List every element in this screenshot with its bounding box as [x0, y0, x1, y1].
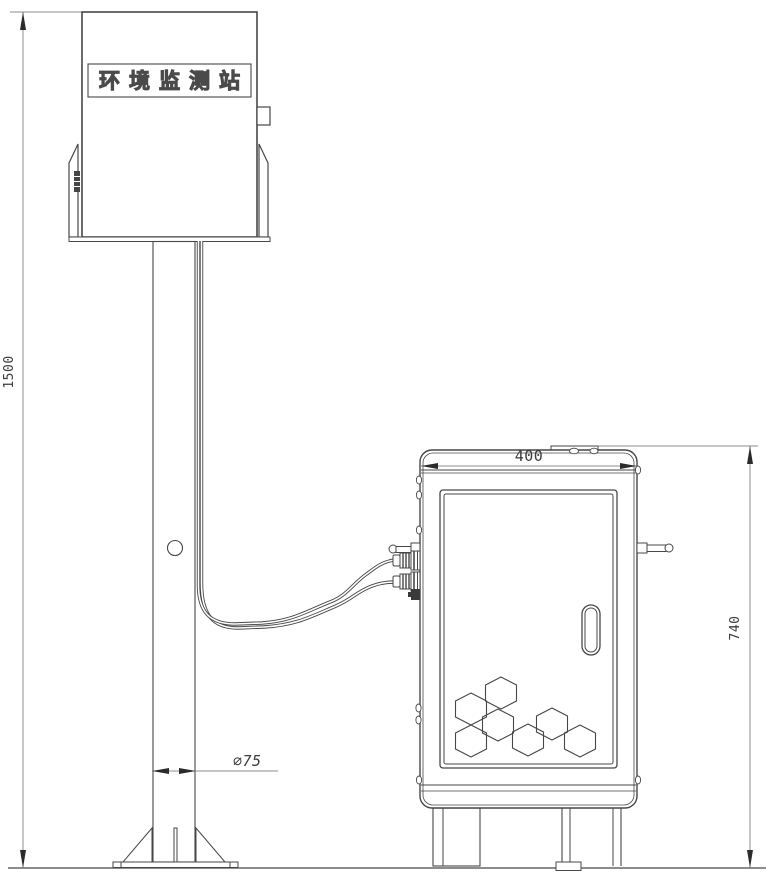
installation-drawing: 1500 环境监测站 — [0, 0, 769, 882]
cabinet-legs — [433, 808, 621, 871]
sensor-cabinet — [389, 448, 673, 870]
dim-pole-height-value: 1500 — [2, 355, 17, 388]
bracket-hinge-icon — [74, 171, 80, 192]
signal-cable — [199, 241, 395, 628]
small-connector-icon — [408, 589, 420, 600]
monitoring-station-box: 环境监测站 — [69, 12, 270, 242]
pole-base — [113, 828, 238, 868]
cable-upper-outline — [199, 241, 395, 624]
arrow-up-icon — [20, 12, 26, 30]
bottom-band — [69, 237, 270, 242]
pole-cable-hole — [168, 541, 183, 556]
base-plate — [113, 862, 238, 868]
arrow-down-icon — [747, 850, 753, 868]
right-leg — [556, 808, 621, 871]
right-gusset — [196, 828, 225, 862]
technical-drawing-page: 1500 环境监测站 — [0, 0, 769, 882]
dimension-pole-height: 1500 — [2, 12, 82, 868]
side-tab — [257, 107, 270, 125]
cable-lower-core — [202, 241, 395, 628]
dim-pole-diameter-value: ∅75 — [233, 752, 262, 770]
arrow-down-icon — [20, 850, 26, 868]
left-gusset — [123, 828, 152, 862]
right-leg-foot — [556, 862, 581, 871]
left-side-fittings — [389, 543, 420, 600]
left-leg — [433, 808, 480, 866]
top-pad-icon — [590, 448, 598, 454]
dimension-cabinet-height: 740 — [728, 446, 753, 868]
dim-cabinet-width-value: 400 — [515, 447, 544, 465]
top-pad-icon — [570, 448, 579, 454]
station-nameplate-label: 环境监测站 — [99, 69, 249, 93]
cable-upper-core — [199, 241, 395, 624]
arrow-up-icon — [747, 446, 753, 464]
cable-lower-outline — [202, 241, 395, 628]
cable-gland-upper — [393, 551, 420, 570]
center-rib — [174, 828, 177, 862]
cable-gland-lower — [393, 572, 420, 591]
right-antenna-rod-icon — [637, 543, 673, 553]
cabinet-door — [440, 490, 617, 768]
mounting-pole — [153, 242, 195, 863]
right-bracket — [259, 144, 268, 237]
dim-cabinet-height-value: 740 — [728, 616, 743, 641]
station-enclosure — [82, 12, 257, 237]
